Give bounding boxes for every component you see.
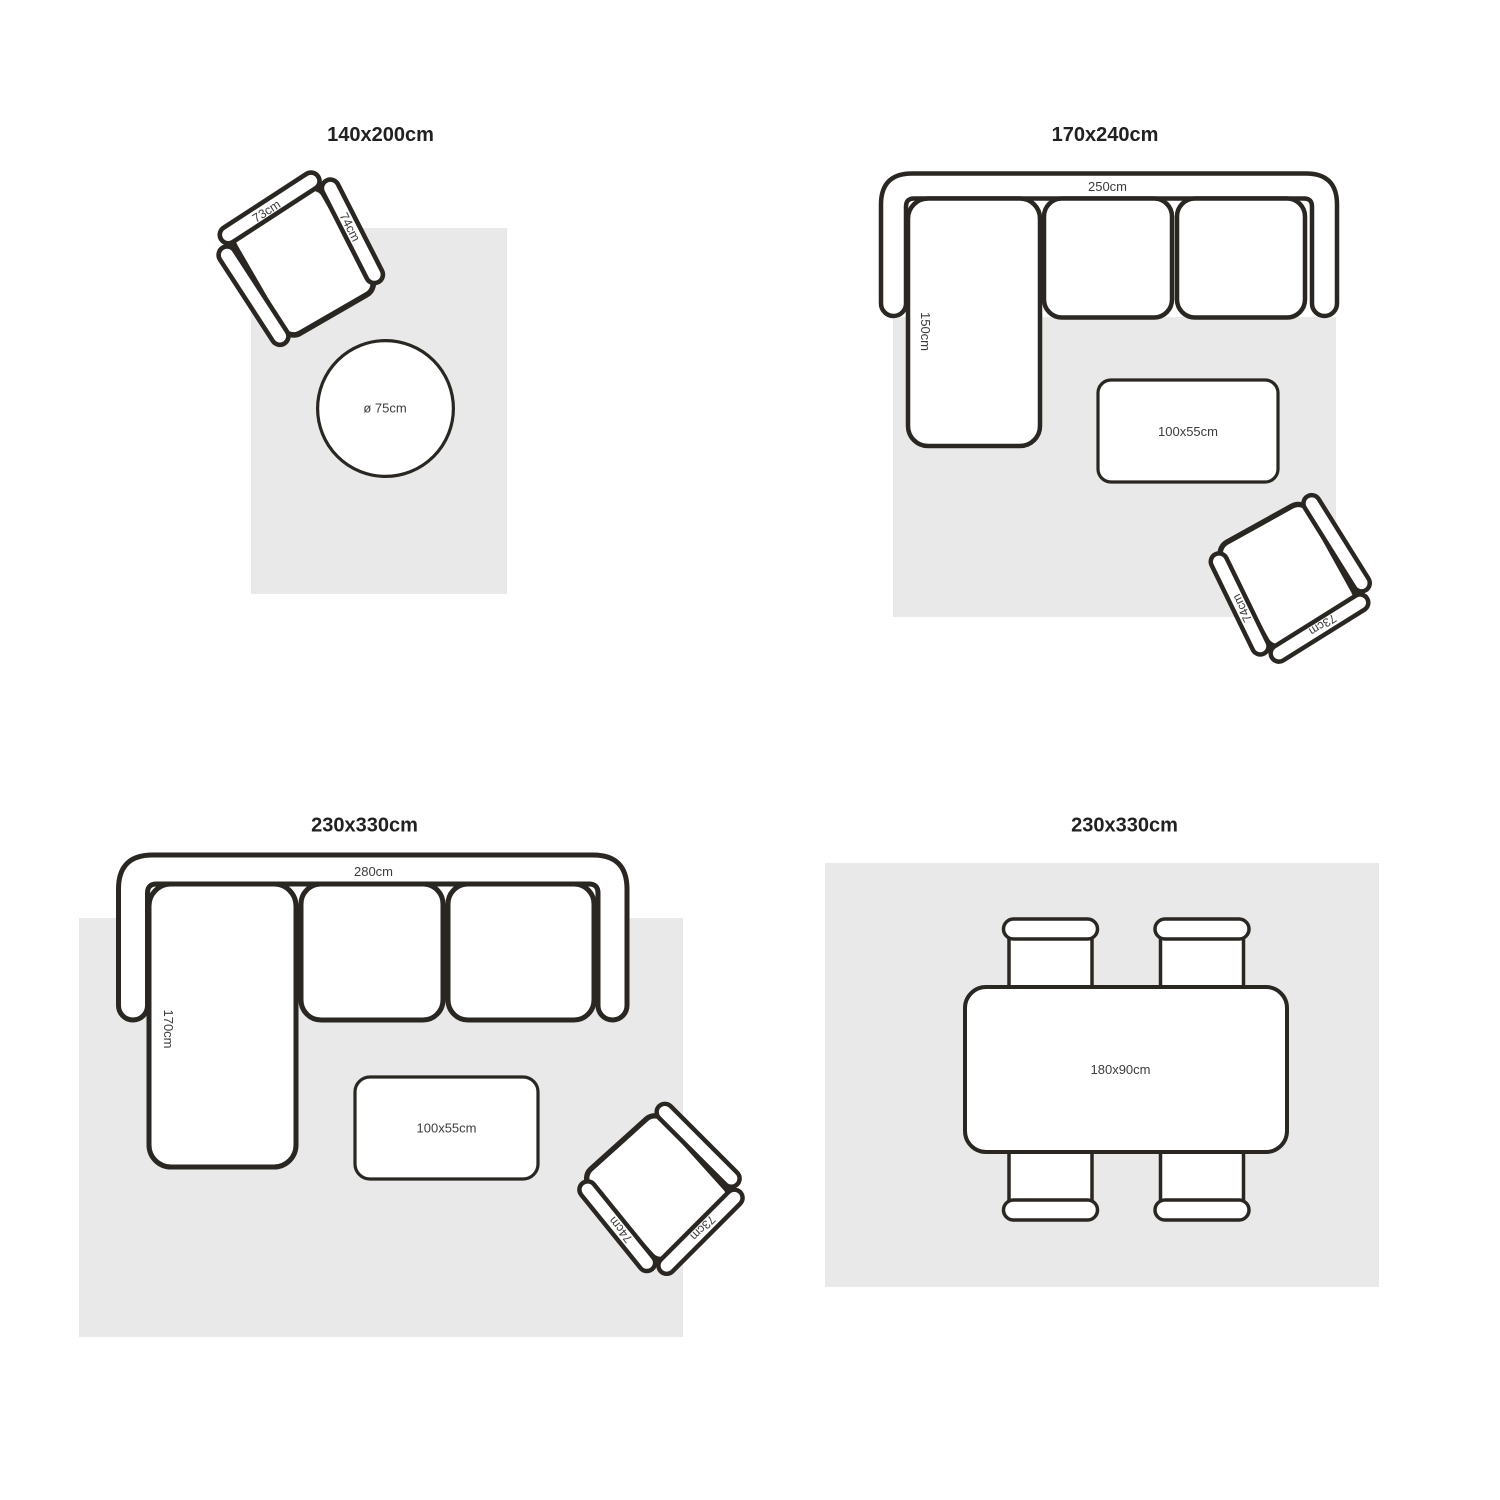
svg-text:230x330cm: 230x330cm bbox=[311, 815, 418, 837]
svg-text:180x90cm: 180x90cm bbox=[1091, 1062, 1151, 1077]
svg-text:150cm: 150cm bbox=[918, 312, 933, 351]
svg-text:100x55cm: 100x55cm bbox=[1158, 424, 1218, 439]
svg-text:230x330cm: 230x330cm bbox=[1071, 815, 1178, 837]
svg-text:140x200cm: 140x200cm bbox=[327, 124, 434, 146]
svg-text:170x240cm: 170x240cm bbox=[1052, 124, 1159, 146]
svg-text:ø 75cm: ø 75cm bbox=[363, 401, 406, 416]
svg-text:170cm: 170cm bbox=[161, 1009, 176, 1048]
svg-text:280cm: 280cm bbox=[354, 864, 393, 879]
svg-text:100x55cm: 100x55cm bbox=[417, 1121, 477, 1136]
svg-text:250cm: 250cm bbox=[1088, 179, 1127, 194]
